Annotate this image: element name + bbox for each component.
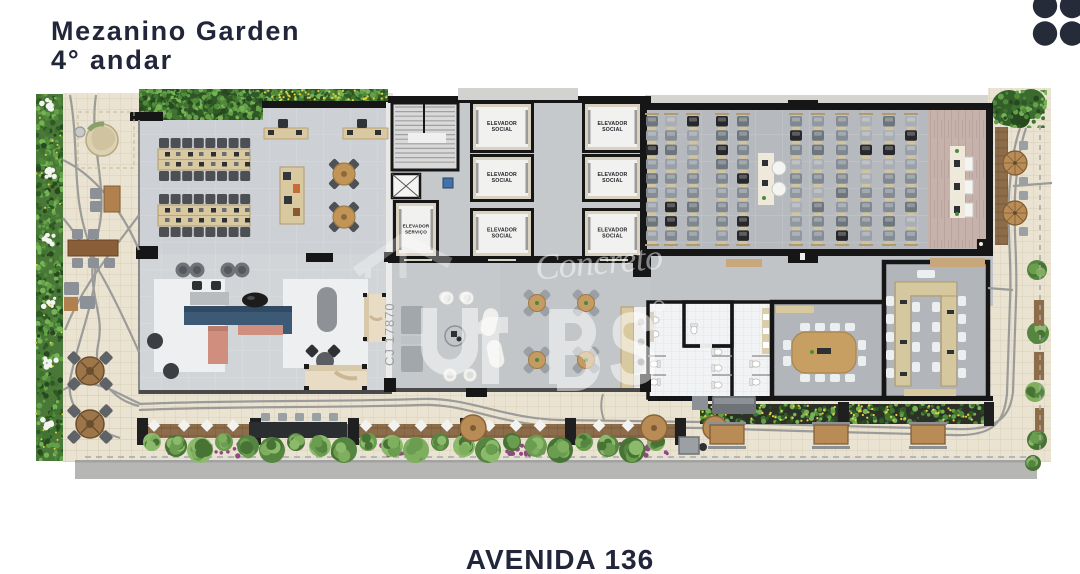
svg-text:ELEVADOR: ELEVADOR	[403, 224, 430, 229]
svg-text:CJ 17870: CJ 17870	[382, 302, 397, 366]
svg-text:SOCIAL: SOCIAL	[602, 127, 623, 133]
svg-text:R: R	[656, 304, 661, 311]
svg-text:SERVIÇO: SERVIÇO	[405, 230, 427, 235]
svg-text:SOCIAL: SOCIAL	[492, 127, 513, 133]
svg-text:SOCIAL: SOCIAL	[492, 178, 513, 184]
svg-text:4° andar: 4° andar	[51, 45, 173, 75]
svg-text:SOCIAL: SOCIAL	[602, 234, 623, 240]
svg-text:SOCIAL: SOCIAL	[602, 178, 623, 184]
svg-text:Mezanino Garden: Mezanino Garden	[51, 16, 300, 46]
svg-text:SOCIAL: SOCIAL	[492, 234, 513, 240]
svg-text:AVENIDA 136: AVENIDA 136	[466, 544, 654, 574]
svg-text:S: S	[608, 292, 659, 407]
